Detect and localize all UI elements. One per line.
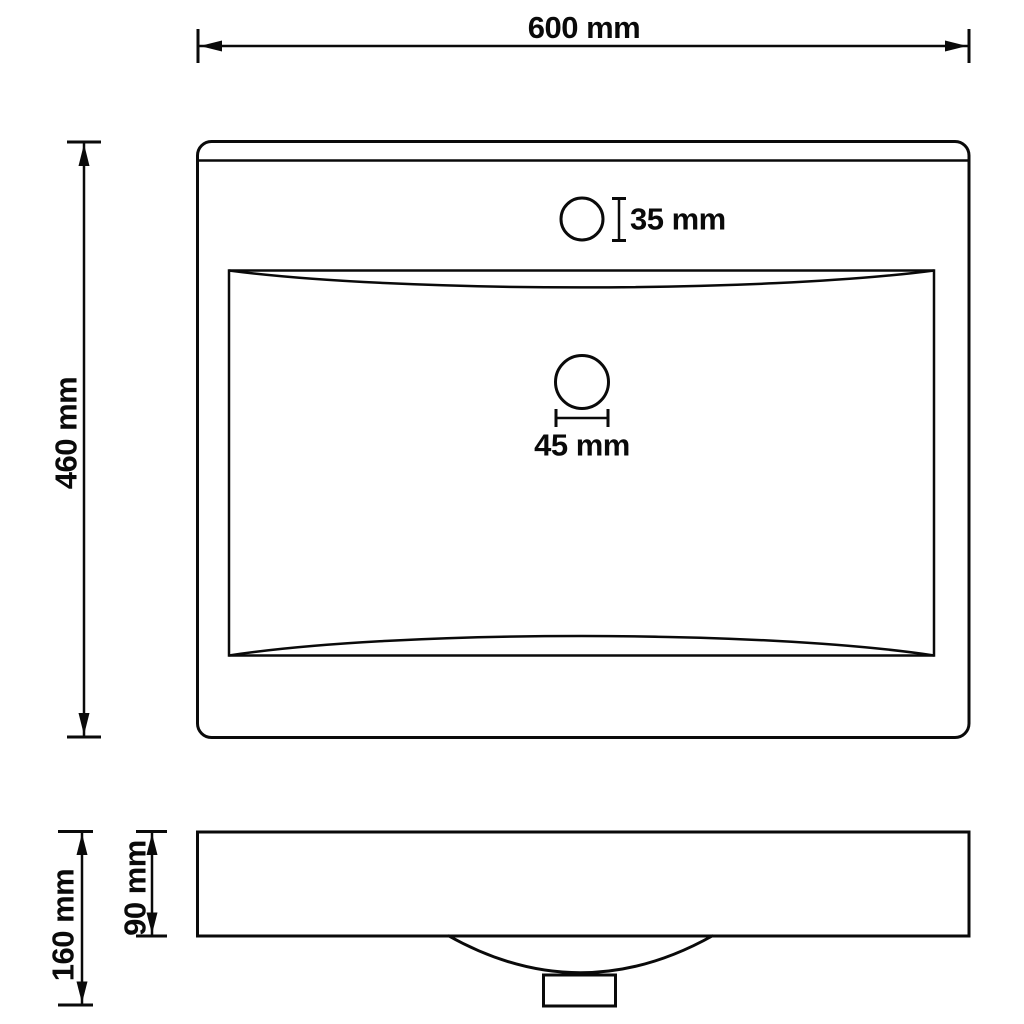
bowl-underside-curve [448, 936, 713, 973]
dim-width-arrow-right [945, 41, 967, 52]
basin-front-curve [229, 636, 934, 656]
dim-basin-depth: 90 mm [118, 832, 168, 937]
dim-faucet-hole: 35 mm [612, 199, 726, 241]
sink-dimension-diagram: 600 mm 460 mm 35 mm 45 mm [0, 0, 1024, 1024]
basin-back-curve [229, 271, 934, 288]
dim-width-arrow-left [200, 41, 222, 52]
side-view [198, 832, 970, 1006]
dim-total-arrow-bottom [77, 982, 88, 1004]
drain-stub [544, 975, 616, 1006]
dim-height-arrow-bottom [79, 713, 90, 735]
basin-outline [229, 271, 934, 656]
width-dimension-label: 600 mm [528, 10, 640, 45]
faucet-hole-dimension-label: 35 mm [630, 202, 726, 237]
dim-total-arrow-top [77, 834, 88, 856]
sink-outline-side [198, 832, 970, 936]
dim-total-height: 160 mm [46, 832, 94, 1006]
dimension-diagram-page: 600 mm 460 mm 35 mm 45 mm [0, 0, 1024, 1024]
basin-depth-dimension-label: 90 mm [118, 840, 153, 936]
total-height-dimension-label: 160 mm [46, 869, 81, 981]
dim-drain-hole: 45 mm [534, 409, 630, 463]
faucet-hole [561, 198, 603, 240]
dim-width: 600 mm [198, 10, 969, 63]
dim-height-arrow-top [79, 144, 90, 166]
drain-hole [556, 356, 609, 409]
dim-height: 460 mm [49, 142, 102, 737]
drain-hole-dimension-label: 45 mm [534, 428, 630, 463]
height-dimension-label: 460 mm [49, 377, 84, 489]
